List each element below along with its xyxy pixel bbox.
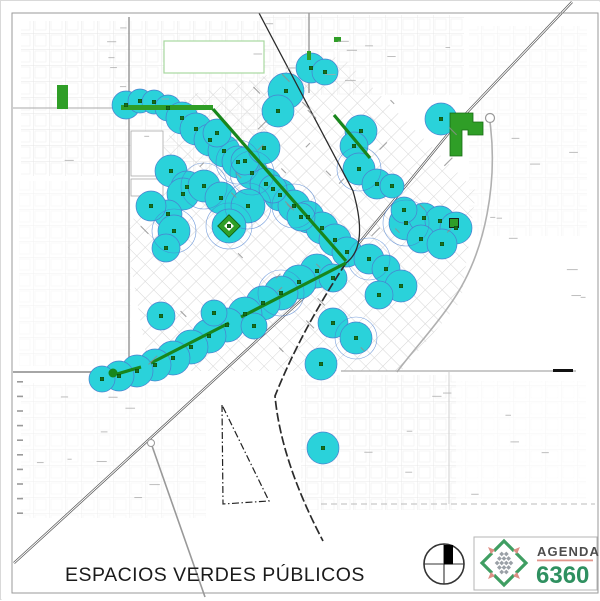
green-space-mark [377, 293, 381, 297]
green-space-mark [345, 250, 349, 254]
green-space-mark [207, 334, 211, 338]
green-space-mark [227, 224, 231, 228]
green-space-mark [333, 238, 337, 242]
green-space-mark [404, 221, 408, 225]
green-space-mark [299, 215, 303, 219]
green-space-mark [292, 204, 296, 208]
green-space-mark [352, 144, 356, 148]
green-space-mark [171, 356, 175, 360]
green-space-mark [202, 184, 206, 188]
green-space-mark [321, 446, 325, 450]
green-space-mark [250, 171, 254, 175]
green-space-mark [149, 204, 153, 208]
green-space-mark [419, 237, 423, 241]
green-space-mark [309, 66, 313, 70]
edge-tick [17, 425, 23, 427]
green-space-mark [454, 226, 458, 230]
logo-brand-text: AGENDA [537, 544, 600, 559]
green-space-mark [354, 336, 358, 340]
green-space-mark [262, 146, 266, 150]
green-space-mark [331, 321, 335, 325]
park-area [307, 51, 311, 60]
green-space-mark [225, 323, 229, 327]
green-space-mark [166, 106, 170, 110]
north-symbol-icon [424, 544, 464, 584]
green-space-mark [357, 167, 361, 171]
outlined-parcel [164, 41, 264, 73]
agenda-6360-logo: AGENDA 6360 [474, 537, 600, 590]
green-space-mark [315, 269, 319, 273]
green-space-mark [135, 369, 139, 373]
map-title: ESPACIOS VERDES PÚBLICOS [65, 563, 365, 586]
green-space-mark [194, 127, 198, 131]
edge-tick [17, 512, 23, 514]
green-space-mark [276, 109, 280, 113]
green-space-mark [222, 149, 226, 153]
green-space-mark [100, 377, 104, 381]
edge-tick [17, 498, 23, 500]
green-space-mark [390, 184, 394, 188]
green-space-mark [166, 212, 170, 216]
green-space-mark [181, 192, 185, 196]
green-space-mark [440, 242, 444, 246]
roundabout [486, 114, 495, 123]
green-space-mark [402, 208, 406, 212]
green-space-mark [117, 374, 121, 378]
green-space-mark [138, 99, 142, 103]
edge-tick [17, 454, 23, 456]
green-space-mark [384, 267, 388, 271]
edge-tick [17, 381, 23, 383]
green-space-mark [438, 219, 442, 223]
green-space-mark [212, 311, 216, 315]
green-space-mark [236, 160, 240, 164]
green-space-mark [164, 246, 168, 250]
green-space-mark [359, 129, 363, 133]
green-space-mark [271, 187, 275, 191]
boulevard-end [109, 369, 118, 378]
green-space-mark [124, 103, 128, 107]
edge-tick [17, 469, 23, 471]
green-space-mark [153, 363, 157, 367]
green-space-mark [189, 345, 193, 349]
edge-tick [17, 439, 23, 441]
green-space-mark [319, 362, 323, 366]
green-space-mark [243, 159, 247, 163]
green-space-mark [399, 284, 403, 288]
green-space-mark [172, 229, 176, 233]
green-space-mark [261, 301, 265, 305]
edge-tick [17, 396, 23, 398]
park-area [57, 85, 68, 109]
green-space-mark [367, 257, 371, 261]
city-map: ESPACIOS VERDES PÚBLICOS AGENDA 6360 [1, 1, 600, 601]
green-space-mark [219, 196, 223, 200]
green-space-mark [152, 100, 156, 104]
green-space-mark [243, 312, 247, 316]
plan-sheet: ESPACIOS VERDES PÚBLICOS AGENDA 6360 [0, 0, 600, 600]
green-space-mark [422, 216, 426, 220]
green-space-mark [320, 226, 324, 230]
green-space-mark [246, 204, 250, 208]
green-space-mark [185, 185, 189, 189]
green-space-mark [284, 89, 288, 93]
green-space-mark [180, 116, 184, 120]
edge-tick [17, 483, 23, 485]
green-space-mark [306, 215, 310, 219]
junction [148, 440, 155, 447]
green-space-mark [169, 169, 173, 173]
green-space-mark [375, 182, 379, 186]
green-space-mark [215, 131, 219, 135]
green-space-mark [208, 138, 212, 142]
green-space-mark [439, 117, 443, 121]
green-space-mark [159, 314, 163, 318]
green-space-mark [323, 70, 327, 74]
green-space-mark [278, 193, 282, 197]
edge-tick [17, 410, 23, 412]
green-space-mark [264, 182, 268, 186]
scale-tick [553, 369, 573, 372]
green-space-mark [279, 291, 283, 295]
green-space-mark [297, 280, 301, 284]
green-space-mark [331, 276, 335, 280]
logo-number-text: 6360 [536, 562, 589, 589]
green-space-mark [252, 324, 256, 328]
